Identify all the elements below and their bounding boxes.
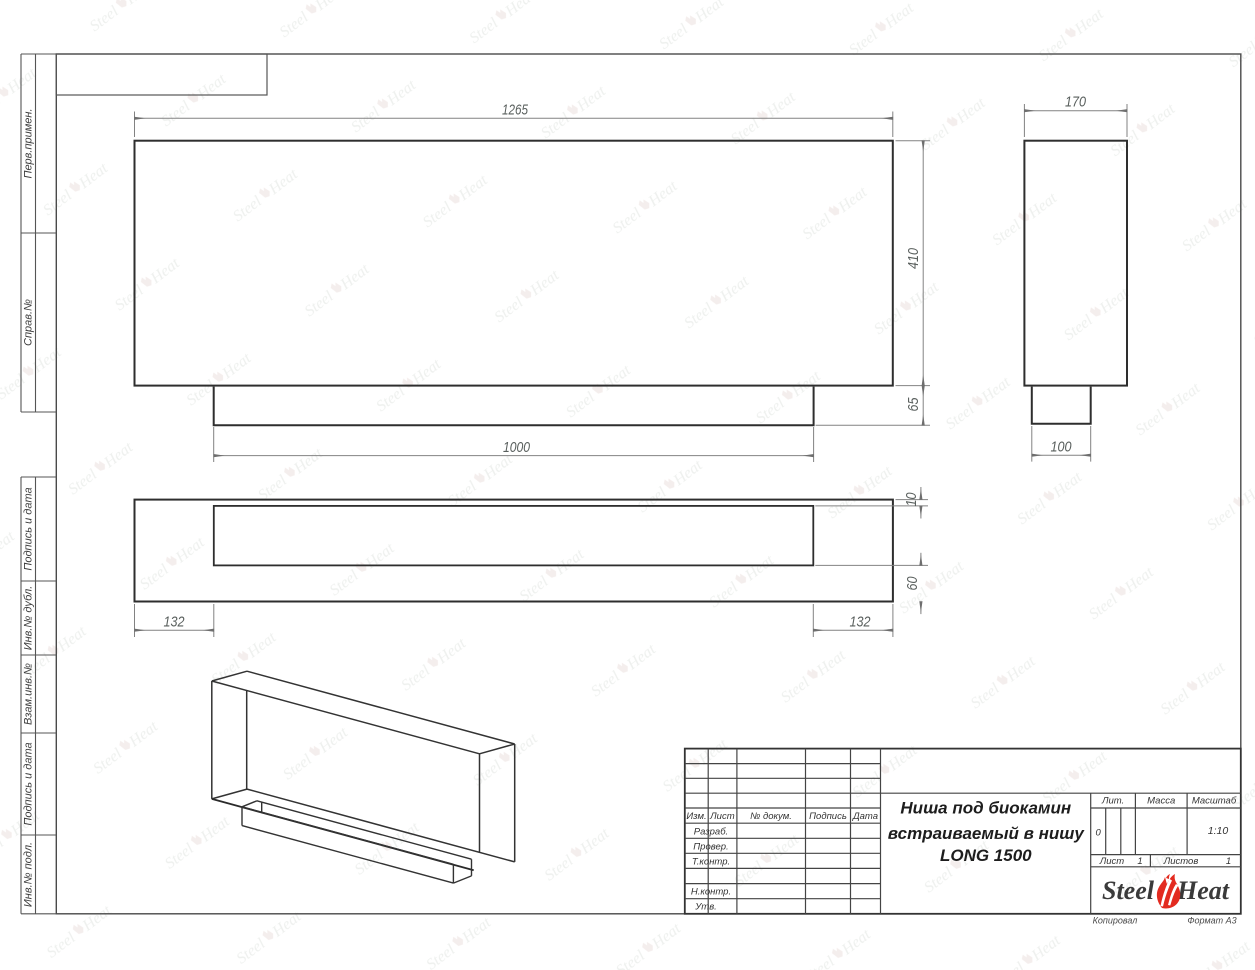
svg-text:170: 170 [1065, 94, 1087, 111]
svg-text:10: 10 [903, 492, 920, 507]
svg-text:Дата: Дата [852, 811, 878, 822]
svg-text:Подпись и дата: Подпись и дата [23, 487, 35, 570]
svg-text:Подпись: Подпись [809, 811, 847, 822]
svg-text:Взам.инв.№: Взам.инв.№ [23, 663, 35, 725]
svg-text:Ниша под биокамин: Ниша под биокамин [900, 799, 1071, 818]
svg-text:Steel: Steel [1102, 876, 1155, 905]
svg-text:132: 132 [850, 613, 872, 630]
svg-text:Инв.№ дубл.: Инв.№ дубл. [23, 586, 35, 651]
svg-text:встраиваемый в нишу: встраиваемый в нишу [888, 824, 1086, 843]
svg-text:Heat: Heat [1176, 876, 1230, 905]
svg-text:LONG 1500: LONG 1500 [940, 846, 1032, 865]
svg-text:Лит.: Лит. [1101, 796, 1124, 807]
svg-text:Инв.№ подл.: Инв.№ подл. [23, 842, 35, 907]
svg-text:Лист: Лист [1099, 856, 1125, 867]
svg-text:Подпись и дата: Подпись и дата [23, 742, 35, 825]
svg-text:Разраб.: Разраб. [694, 826, 728, 837]
svg-text:Масса: Масса [1147, 796, 1175, 807]
svg-text:Перв.примен.: Перв.примен. [23, 108, 35, 178]
svg-text:65: 65 [905, 397, 922, 412]
svg-text:Справ.№: Справ.№ [23, 299, 35, 346]
svg-text:0: 0 [1096, 827, 1102, 838]
svg-text:Масштаб: Масштаб [1192, 796, 1237, 807]
svg-text:1:10: 1:10 [1208, 825, 1229, 837]
svg-text:410: 410 [905, 247, 922, 269]
svg-text:1: 1 [1137, 856, 1142, 867]
svg-text:Листов: Листов [1163, 856, 1199, 867]
svg-text:1265: 1265 [502, 102, 529, 119]
svg-text:Н.контр.: Н.контр. [691, 887, 731, 898]
svg-text:1000: 1000 [503, 439, 531, 456]
svg-text:Изм.: Изм. [686, 811, 706, 822]
svg-text:132: 132 [164, 613, 186, 630]
svg-text:1: 1 [1226, 856, 1231, 867]
svg-text:Копировал: Копировал [1093, 916, 1138, 926]
svg-text:№ докум.: № докум. [750, 811, 792, 822]
svg-text:100: 100 [1051, 438, 1073, 455]
svg-text:Лист: Лист [709, 811, 735, 822]
svg-text:Провер.: Провер. [693, 841, 728, 852]
svg-text:60: 60 [904, 576, 921, 591]
svg-text:Утв.: Утв. [694, 902, 717, 913]
svg-text:Т.контр.: Т.контр. [692, 856, 730, 867]
svg-text:Формат А3: Формат А3 [1187, 916, 1236, 926]
